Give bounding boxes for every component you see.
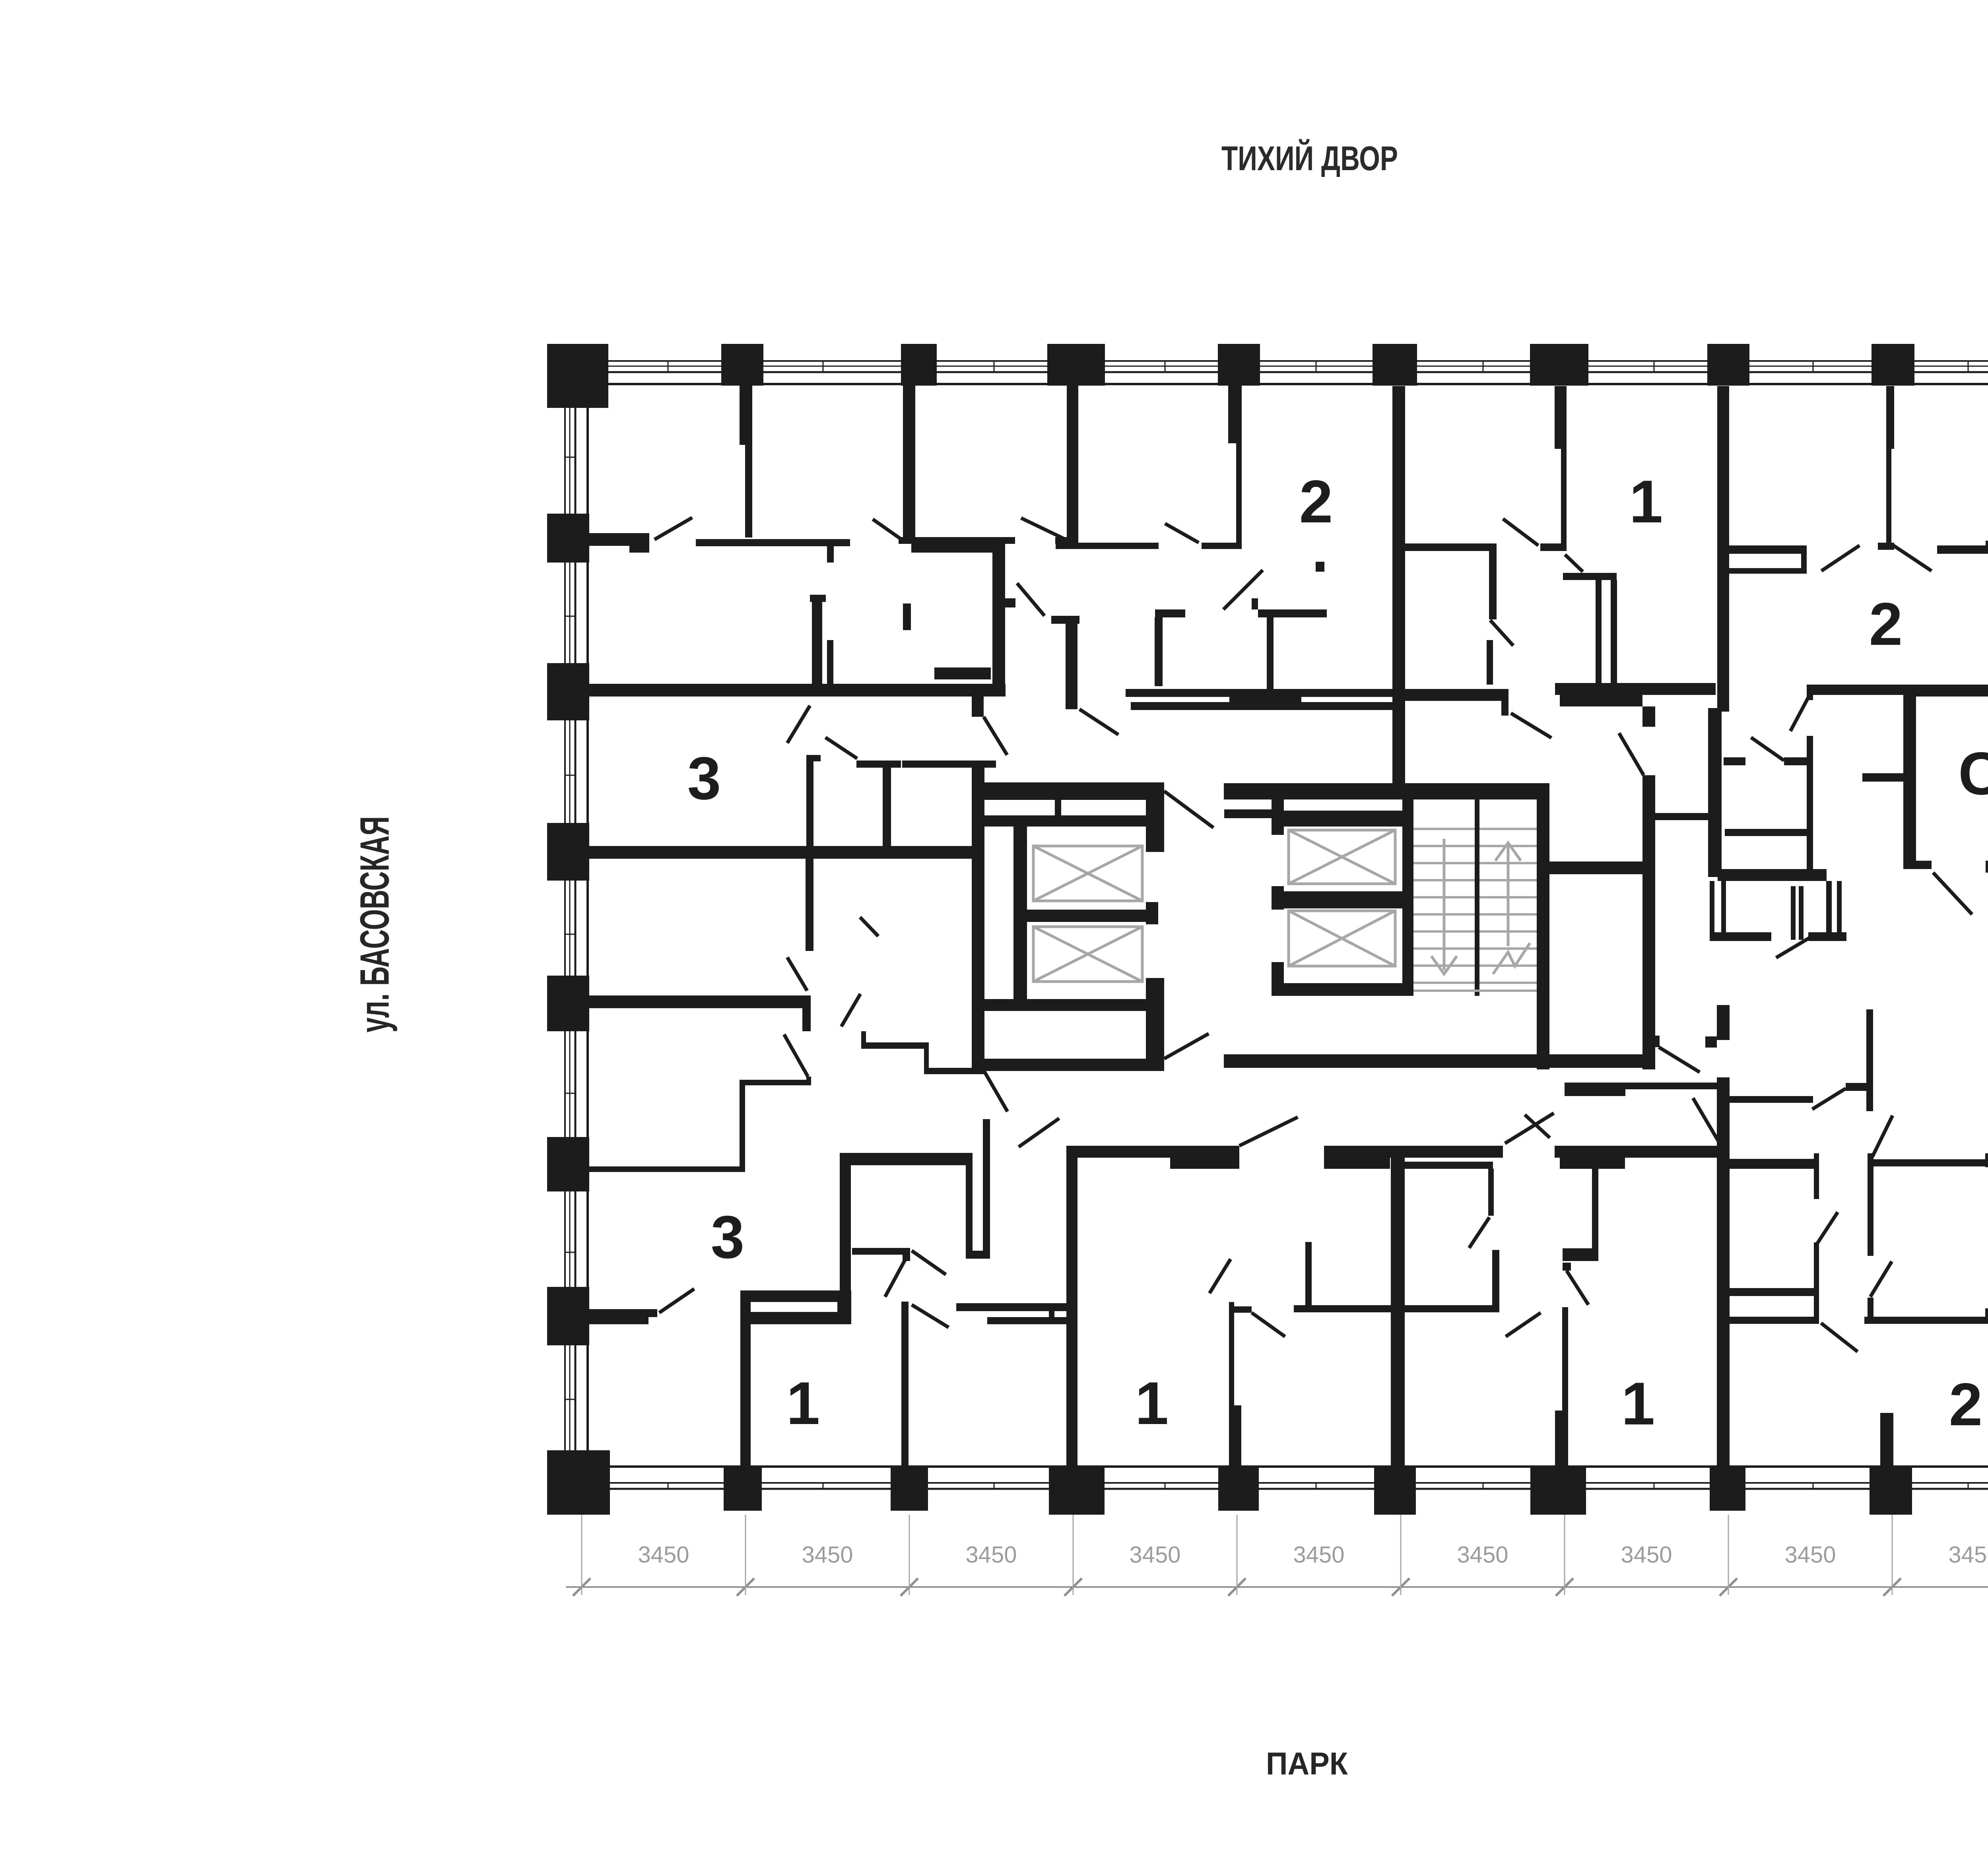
- svg-text:3450: 3450: [1948, 1542, 1988, 1568]
- svg-text:3: 3: [687, 745, 721, 812]
- svg-text:3450: 3450: [1129, 1542, 1180, 1568]
- svg-text:3450: 3450: [1457, 1542, 1508, 1568]
- svg-text:2: 2: [1949, 1371, 1983, 1438]
- svg-text:1: 1: [1629, 468, 1663, 536]
- svg-text:ул. БАСОВСКАЯ: ул. БАСОВСКАЯ: [352, 816, 398, 1032]
- svg-text:2: 2: [1299, 468, 1333, 536]
- svg-text:3450: 3450: [1784, 1542, 1836, 1568]
- svg-text:3450: 3450: [965, 1542, 1017, 1568]
- svg-text:3450: 3450: [638, 1542, 689, 1568]
- svg-text:ТИХИЙ ДВОР: ТИХИЙ ДВОР: [1221, 139, 1398, 178]
- svg-text:С: С: [1958, 740, 1988, 807]
- svg-text:3450: 3450: [1293, 1542, 1344, 1568]
- svg-text:1: 1: [786, 1370, 820, 1437]
- svg-text:3450: 3450: [802, 1542, 853, 1568]
- svg-text:3450: 3450: [1621, 1542, 1672, 1568]
- svg-text:2: 2: [1869, 590, 1903, 658]
- svg-text:1: 1: [1621, 1370, 1655, 1438]
- svg-text:ПАРК: ПАРК: [1266, 1746, 1348, 1781]
- svg-text:1: 1: [1135, 1370, 1169, 1437]
- svg-text:3: 3: [711, 1203, 745, 1271]
